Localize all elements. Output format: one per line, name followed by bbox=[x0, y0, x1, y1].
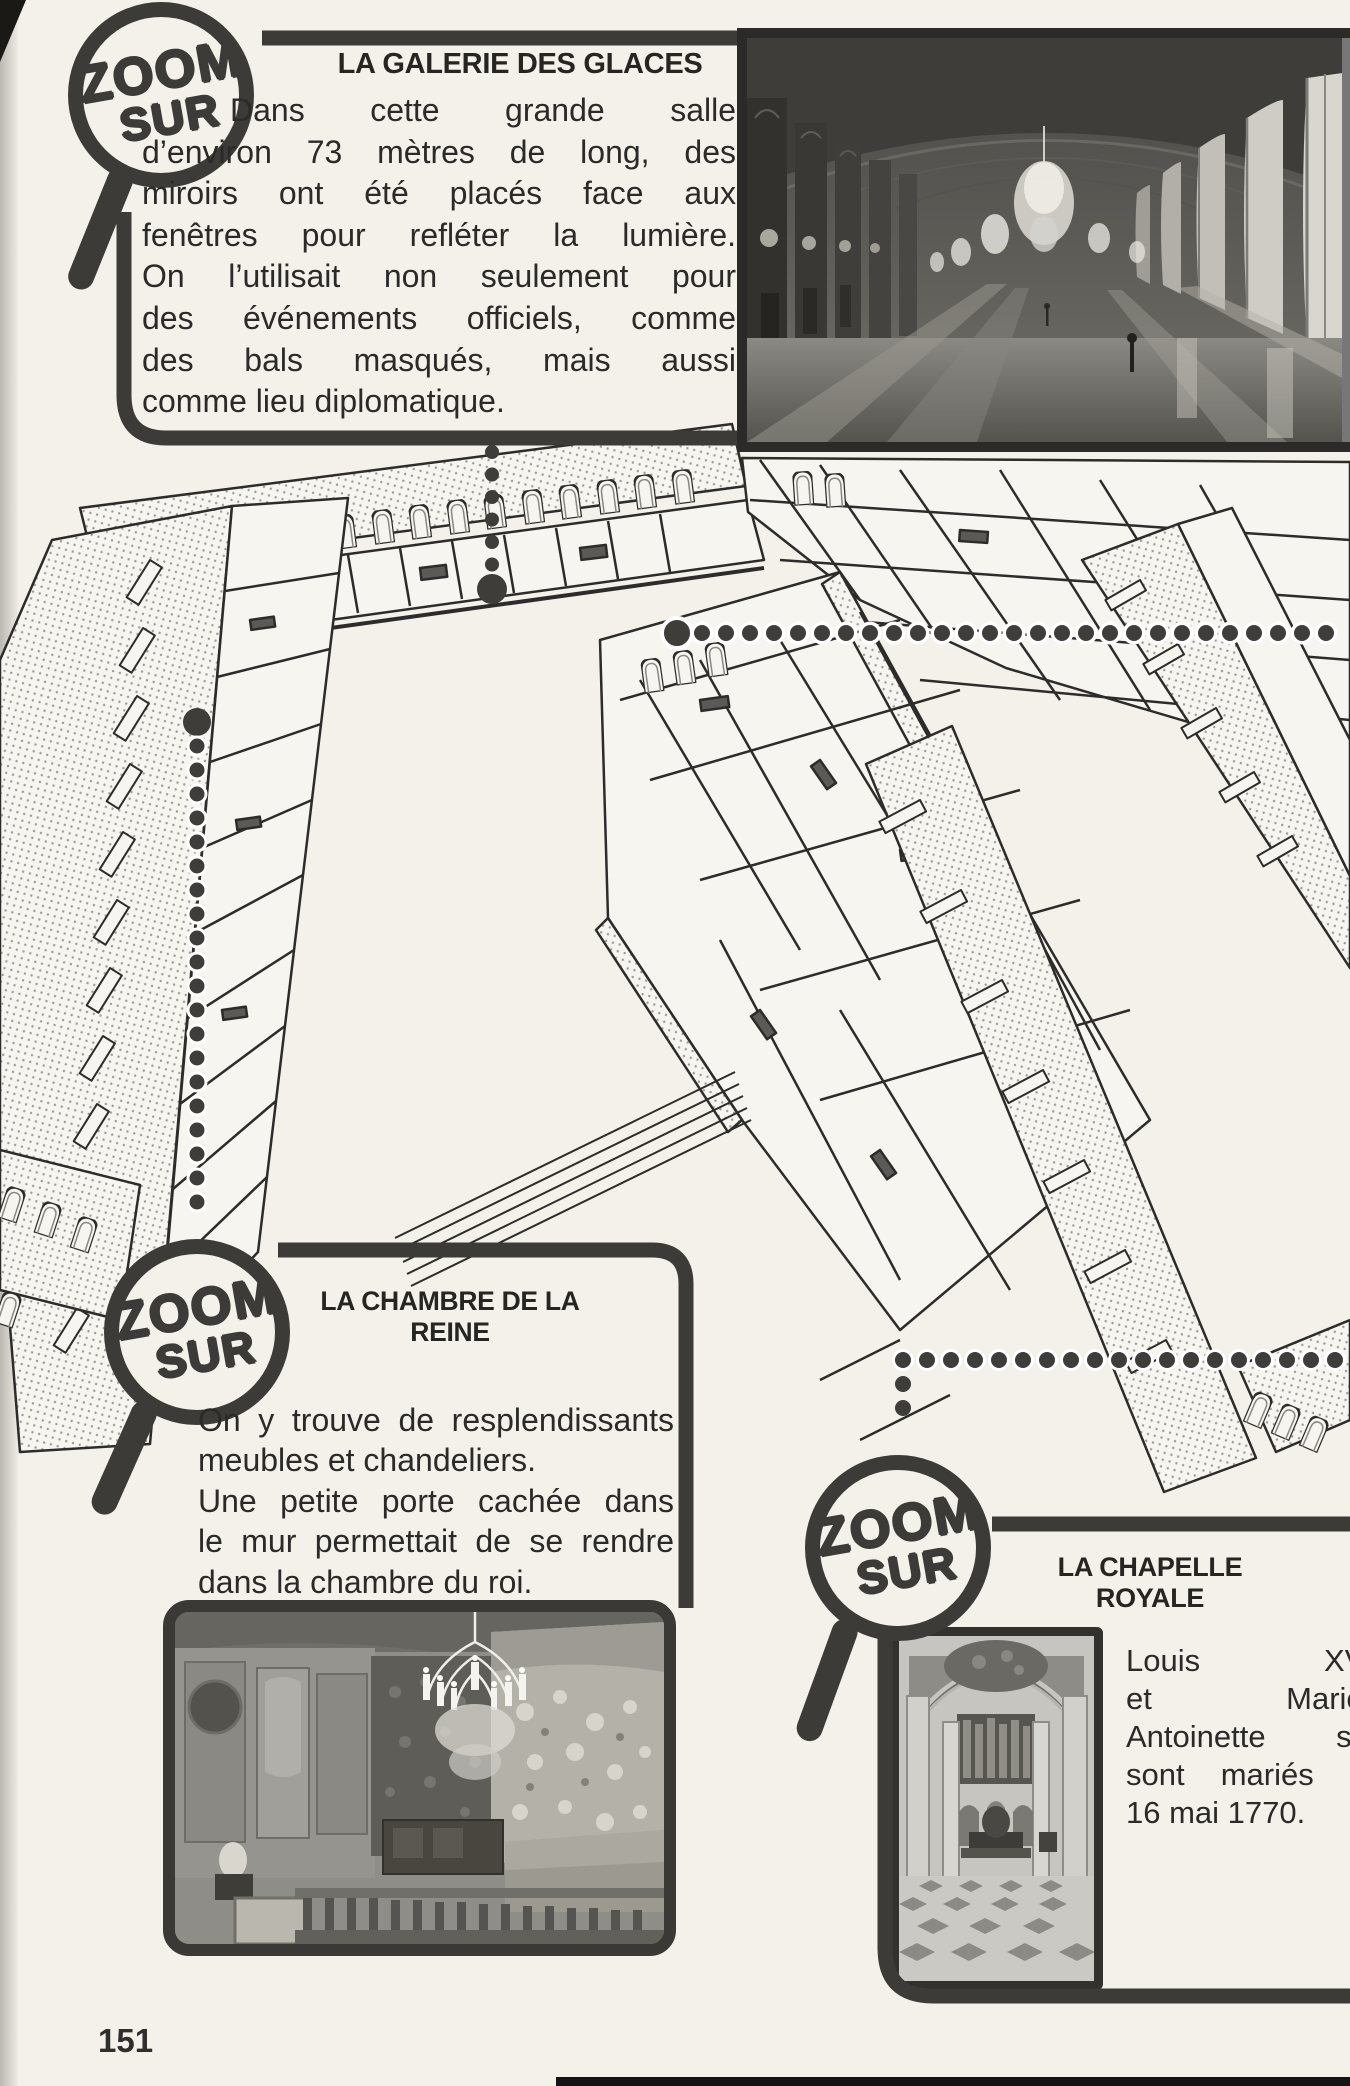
scan-bottom-edge-artifact bbox=[556, 2077, 1350, 2086]
galerie-paragraph: Dans cette grande salle d’environ 73 mèt… bbox=[142, 90, 736, 423]
page-number: 151 bbox=[98, 2022, 153, 2060]
paragraph-line: dans la chambre du roi. bbox=[198, 1562, 674, 1602]
paragraph-line: 16 mai 1770. bbox=[1126, 1794, 1350, 1832]
paragraph-line: d’environ 73 mètres de long, des bbox=[142, 132, 736, 174]
paragraph-line: comme lieu diplomatique. bbox=[142, 381, 736, 423]
paragraph-line: Louis XVI bbox=[1126, 1642, 1350, 1680]
section-title-chambre: LA CHAMBRE DE LA REINE bbox=[285, 1286, 615, 1348]
paragraph-line: sont mariés le bbox=[1126, 1756, 1350, 1794]
paragraph-line: miroirs ont été placés face aux bbox=[142, 173, 736, 215]
zoom-sur-badge-chambre: ZOOM SUR bbox=[104, 1239, 290, 1425]
paragraph-line: des bals masqués, mais aussi bbox=[142, 340, 736, 382]
paragraph-line: le mur permettait de se rendre bbox=[198, 1521, 674, 1561]
section-title-galerie: LA GALERIE DES GLACES bbox=[300, 48, 740, 81]
paragraph-line: Une petite porte cachée dans bbox=[198, 1481, 674, 1521]
zoom-sur-badge-chapelle: ZOOM SUR bbox=[805, 1455, 991, 1641]
paragraph-line: et Marie- bbox=[1126, 1680, 1350, 1718]
scan-corner-artifact bbox=[0, 0, 26, 62]
chambre-paragraph: On y trouve de resplendissants meubles e… bbox=[198, 1400, 674, 1602]
zoom-sur-label: SUR bbox=[153, 1326, 260, 1386]
paragraph-line: Dans cette grande salle bbox=[142, 90, 736, 132]
section-title-chapelle: LA CHAPELLE ROYALE bbox=[1020, 1552, 1280, 1614]
paragraph-line: Antoinette s’y bbox=[1126, 1718, 1350, 1756]
paragraph-line: meubles et chandeliers. bbox=[198, 1440, 674, 1480]
chapelle-paragraph: Louis XVI et Marie- Antoinette s’y sont … bbox=[1126, 1642, 1350, 1832]
paragraph-line: des événements officiels, comme bbox=[142, 298, 736, 340]
paragraph-line: On l’utilisait non seulement pour bbox=[142, 256, 736, 298]
zoom-sur-label: SUR bbox=[854, 1542, 961, 1602]
book-page: ZOOM SUR ZOOM SUR ZOOM SUR LA GALERIE DE… bbox=[0, 0, 1350, 2086]
paragraph-line: On y trouve de resplendissants bbox=[198, 1400, 674, 1440]
paragraph-line: fenêtres pour refléter la lumière. bbox=[142, 215, 736, 257]
